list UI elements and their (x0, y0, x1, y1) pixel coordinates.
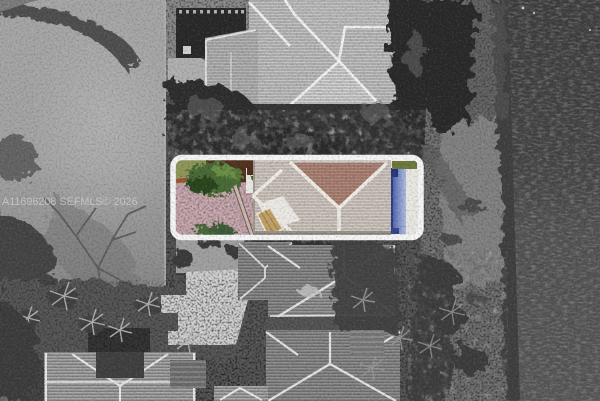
svg-text:A11696208 SEFMLS© 2026: A11696208 SEFMLS© 2026 (2, 196, 138, 208)
